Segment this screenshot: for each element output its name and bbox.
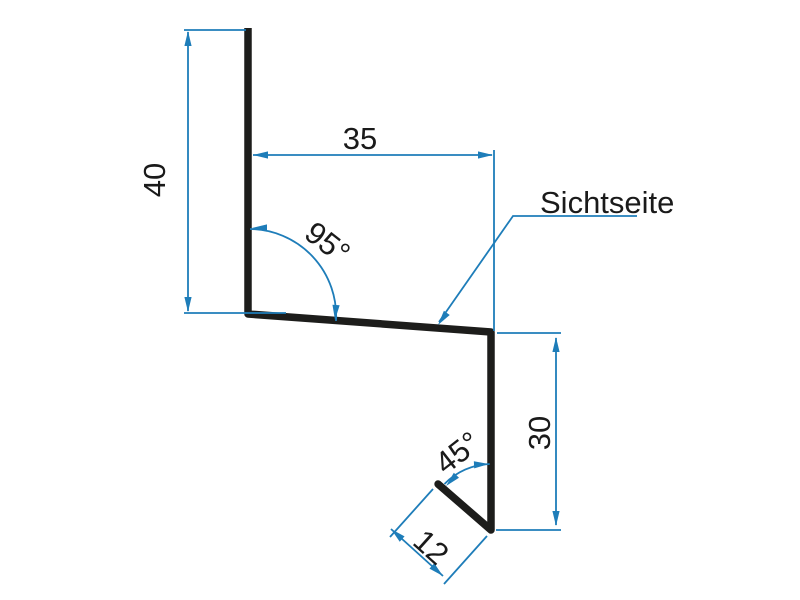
dimension-width-top: 35 [253,121,494,331]
dimension-angle-upper: 95° [250,215,357,321]
dim-30-arrow-up-icon [552,337,559,352]
dimension-height-right: 30 [496,333,561,530]
dimension-height-left: 40 [137,30,286,313]
dim-95-arrow-top-icon [252,224,267,231]
dim-35-arrow-left-icon [253,151,268,158]
dim-40-label: 40 [137,163,172,197]
dim-35-label: 35 [343,121,377,156]
sichtseite-leader-line [439,216,637,322]
dimension-angle-lower: 45° [428,425,489,489]
sichtseite-label: Sichtseite [540,185,674,220]
dim-30-arrow-down-icon [552,511,559,526]
dim-40-arrow-up-icon [184,31,191,46]
dimension-flange: 12 [389,489,487,584]
drawing-page: 40 35 95° Sichtseite [0,0,800,600]
profile-flange-end-cap [434,480,441,487]
leader-sichtseite: Sichtseite [435,185,674,327]
dim-40-arrow-down-icon [184,297,191,312]
dim-30-label: 30 [522,416,557,450]
technical-drawing-canvas: 40 35 95° Sichtseite [0,0,800,600]
dim-45-label: 45° [428,425,486,481]
dim-45-arrow-right-icon [474,460,489,468]
dim-95-label: 95° [298,215,356,271]
dim-12-label: 12 [407,523,456,572]
dim-35-arrow-right-icon [478,151,493,158]
